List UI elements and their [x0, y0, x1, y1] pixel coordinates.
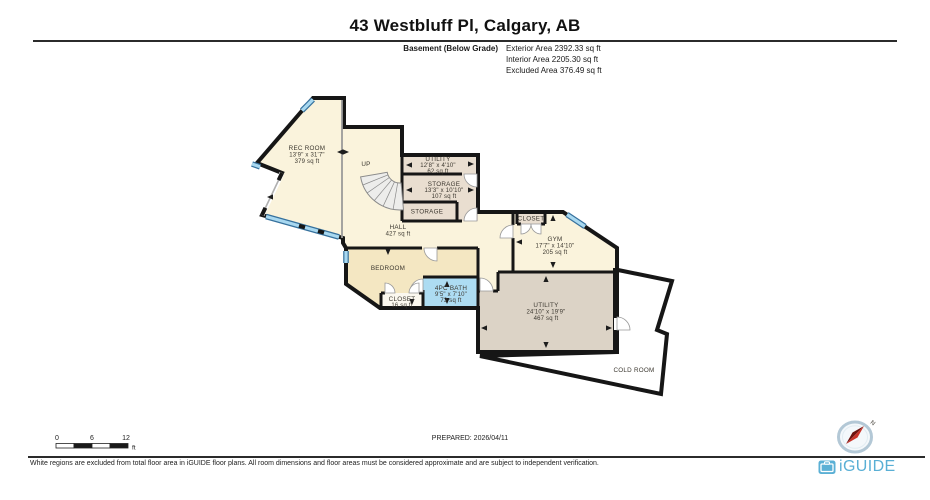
prepared-date: PREPARED: 2026/04/11 — [432, 435, 509, 442]
scale-tick-6: 6 — [90, 435, 94, 442]
room-label-closet-gym: CLOSET — [518, 216, 545, 223]
svg-text:UTILITY: UTILITY — [425, 156, 451, 163]
iguide-logo-text: iGUIDE — [839, 458, 896, 476]
iguide-logo: iGUIDE — [818, 458, 896, 476]
svg-text:467 sq ft: 467 sq ft — [534, 316, 559, 322]
svg-text:HALL: HALL — [390, 224, 407, 231]
svg-text:16 sq ft: 16 sq ft — [391, 303, 412, 309]
room-label-closet-bedroom: CLOSET 16 sq ft — [389, 296, 416, 309]
svg-text:62 sq ft: 62 sq ft — [427, 169, 448, 175]
svg-text:GYM: GYM — [547, 236, 562, 243]
room-label-cold-room: COLD ROOM — [613, 367, 654, 374]
iguide-logo-icon — [818, 459, 836, 475]
svg-text:73 sq ft: 73 sq ft — [440, 298, 461, 304]
svg-text:24'10" x 19'9": 24'10" x 19'9" — [526, 310, 565, 316]
scale-bar: 0 6 12 ft — [55, 435, 136, 452]
floorplan-page: 43 Westbluff Pl, Calgary, AB Basement (B… — [0, 0, 930, 500]
svg-text:STORAGE: STORAGE — [428, 181, 460, 188]
scale-unit: ft — [132, 445, 136, 452]
svg-text:427 sq ft: 427 sq ft — [386, 232, 411, 238]
scale-tick-12: 12 — [122, 435, 130, 442]
footer-divider — [28, 456, 925, 458]
room-label-storage-closet: STORAGE — [411, 209, 443, 216]
svg-text:13'9" x 31'7": 13'9" x 31'7" — [289, 153, 325, 159]
svg-text:107 sq ft: 107 sq ft — [432, 194, 457, 200]
compass-north-label: N — [869, 420, 876, 428]
room-label-bedroom: BEDROOM — [371, 265, 405, 272]
scale-tick-0: 0 — [55, 435, 59, 442]
footer-disclaimer: White regions are excluded from total fl… — [30, 460, 599, 467]
svg-text:205 sq ft: 205 sq ft — [543, 250, 568, 256]
svg-text:REC ROOM: REC ROOM — [289, 145, 326, 152]
floor-plan-canvas: REC ROOM 13'9" x 31'7" 379 sq ft UP UTIL… — [0, 0, 930, 500]
svg-text:UTILITY: UTILITY — [533, 302, 559, 309]
compass: N — [839, 420, 877, 452]
svg-text:4PC BATH: 4PC BATH — [435, 285, 468, 292]
stairs-up-label: UP — [361, 161, 370, 168]
svg-text:CLOSET: CLOSET — [389, 296, 416, 303]
svg-text:379 sq ft: 379 sq ft — [295, 159, 320, 165]
svg-text:17'7" x 14'10": 17'7" x 14'10" — [535, 244, 574, 250]
window-rec-corner — [252, 164, 260, 167]
